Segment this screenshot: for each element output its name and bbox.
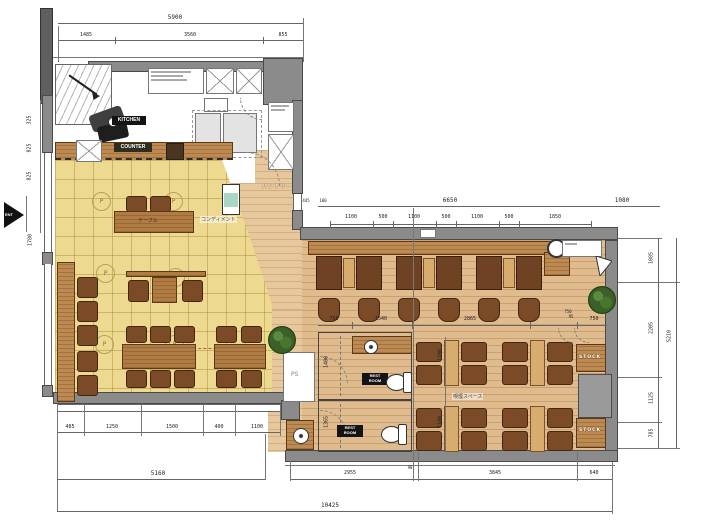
dim-label: 500 [441,215,450,220]
dining-table [343,258,355,288]
dim-value: 90 [408,465,413,470]
dim-value: 2865 [464,316,476,322]
dim-value: 500 [378,214,387,220]
smoking-space-label: 喫煙スペース [452,393,483,400]
dim-label: 1100 [251,425,263,430]
wall-fixture [420,229,436,238]
equipment-note [271,109,285,111]
chair [174,326,195,343]
dim-value: 3560 [184,32,196,38]
dimension-line [57,511,612,512]
equipment-note [271,105,289,107]
condiment-label: コンディメント [200,216,237,223]
display-alcove [562,240,602,257]
dim-label: 785 [650,428,655,437]
dim-label: 1250 [106,425,118,430]
dim-value: 5210 [667,330,673,342]
dim-value: 1100 [251,424,263,430]
dimension-line [58,40,303,41]
ps-shaft [283,352,315,402]
dim-label: 640 [589,471,598,476]
chair [416,431,442,451]
dimension-line [445,337,446,452]
dim-label: 1100 [345,215,357,220]
dim-tick [115,37,116,44]
bottom-left-window [57,404,286,412]
dining-table [122,344,196,369]
dim-value: 1500 [166,424,178,430]
chair [547,365,573,385]
extension-line [418,452,419,481]
extension-line [303,18,304,62]
chair [150,370,171,388]
dim-label: 1540 [375,317,387,322]
dimension-line [591,206,660,207]
dim-tick [436,221,437,228]
corner-mirror [594,256,612,276]
chair [77,301,98,322]
extension-line [577,452,578,481]
extension-line [235,404,236,436]
ps-label-text: PS [291,371,298,378]
dim-value: 5160 [151,470,165,477]
dim-tick [591,221,592,228]
wall-bench [57,262,75,402]
dim-tick [373,221,374,228]
chair [461,431,487,451]
dim-value: 825 [27,143,33,152]
dim-label: 2865 [464,317,476,322]
banquette-bench [308,241,564,255]
dim-tick [263,37,264,44]
dimension-line [676,238,677,448]
chair [150,326,171,343]
chair [174,370,195,388]
dim-value: 750 [329,316,338,322]
dim-label: 1085 [650,252,655,264]
left-window [44,153,52,253]
dim-label: 6650 [443,198,457,204]
left-wall-stub [42,385,53,397]
dim-value: 485 [65,424,74,430]
restroom-label-text: REST ROOM [369,374,381,383]
dim-label: 500 [378,215,387,220]
dining-table [214,344,266,369]
dining-table [152,277,177,303]
stock-label-text: STOCK [579,355,601,360]
chair [77,375,98,396]
pendant-light: P [96,264,115,283]
dining-table [356,256,382,290]
dim-value: 2205 [649,322,655,334]
ps-wall-stub [281,400,300,420]
pendant-label: P [103,341,107,348]
dim-value: 10425 [321,502,339,509]
dim-value: 1850 [549,214,561,220]
restroom-label: REST ROOM [337,425,363,437]
dining-table [396,256,422,290]
dim-label: 1125 [650,392,655,404]
chair [216,370,237,388]
dim-tick [499,221,500,228]
dim-value: 1400 [324,356,330,368]
pendant-label: P [100,198,104,205]
equipment-note [151,75,183,77]
kitchen-equipment [148,68,204,94]
chair [478,298,500,322]
dim-label: 2955 [344,471,356,476]
chair [502,431,528,451]
chair [150,196,171,212]
dim-label: 855 [278,33,287,38]
counter-label-text: COUNTER [121,145,146,151]
dim-label: 325 [28,115,33,124]
chair [216,326,237,343]
chair [241,326,262,343]
sink [364,340,378,354]
condiment-station-shelf [224,193,238,207]
chair [547,408,573,428]
kitchen-label: KITCHEN [112,116,146,125]
extension-line [280,404,281,436]
dim-value: 2955 [344,470,356,476]
stock-label: STOCK [579,355,601,360]
dim-label: 1100 [439,416,444,428]
dim-label: 825 [28,171,33,180]
dim-value: 400 [214,424,223,430]
chair [182,280,203,302]
equipment-note [151,79,187,81]
dim-value: 1080 [615,197,629,204]
counter-label: COUNTER [114,143,152,152]
dim-value: 855 [278,32,287,38]
table-label-text: テーブル [138,218,158,224]
chair [126,196,147,212]
dim-value: 1085 [649,252,655,264]
dimension-line [318,325,607,326]
table-label: テーブル [138,217,158,224]
booth-table [530,406,545,452]
pantry-window [293,194,302,210]
dim-label: 95 [569,315,574,319]
dim-label: 5900 [168,15,182,21]
dimension-line [330,224,591,225]
extension-line [84,404,85,436]
chair [241,370,262,388]
kitchen-equipment [236,68,262,94]
dim-label: 750 [329,317,338,322]
pantry-label: パントリー [262,183,292,190]
dim-label: 100 [319,199,326,203]
dim-value: 1485 [80,32,92,38]
restroom-label: REST ROOM [362,373,388,385]
floor-plan-canvas: P P P P P P KITCHEN [0,0,703,529]
dim-label: 1100 [471,215,483,220]
toilet-tank [398,424,407,445]
dim-label: 825 [28,143,33,152]
pendant-light: P [92,192,111,211]
dimension-line [318,206,591,207]
ps-label: PS [291,371,298,378]
extension-line [413,452,414,481]
dim-label: 750 [589,317,598,322]
dim-label: 10425 [321,503,339,509]
kitchen-label-text: KITCHEN [118,118,140,124]
chair [461,365,487,385]
extension-line [265,434,266,480]
dining-table [423,258,435,288]
refrigerator-note [268,102,294,132]
chair [416,365,442,385]
entrance-label-text: ENT [5,212,13,217]
plant [588,286,616,314]
dimension-line [290,479,612,480]
extension-line [618,282,680,283]
dim-label: 1850 [549,215,561,220]
dim-label: 5210 [668,330,673,342]
dim-value: 825 [27,171,33,180]
chair [518,298,540,322]
dimension-line [57,479,265,480]
exterior-wall [40,8,53,104]
dim-value: 1540 [375,316,387,322]
hall-top-wall [300,227,618,240]
dining-table [316,256,342,290]
bottom-sill-line [285,465,615,466]
chair [461,408,487,428]
dimension-line [57,432,280,433]
entrance-label: ENT [5,212,13,217]
chair [128,280,149,302]
dim-value: 1100 [471,214,483,220]
dim-value: 3845 [489,470,501,476]
dim-label: 500 [504,215,513,220]
dim-value: 6650 [443,197,457,204]
dimension-line [58,23,303,24]
dim-value: 95 [569,314,574,319]
booth-table [444,406,459,452]
extension-line [618,448,680,449]
stock-shelf [576,418,606,448]
dim-label: 3845 [489,471,501,476]
dim-label: 1500 [166,425,178,430]
dim-tick [530,322,531,329]
extension-line [290,460,291,481]
stock-label: STOCK [579,428,601,433]
smoking-space-label-text: 喫煙スペース [453,394,482,400]
dim-label: 1080 [615,198,629,204]
dim-label: 400 [214,425,223,430]
extension-line [57,404,58,512]
dim-value: 1100 [345,214,357,220]
kitchen-equipment [206,68,234,94]
dining-table [503,258,515,288]
toilet-tank [403,372,412,393]
dim-label: 1400 [325,356,330,368]
dim-tick [393,221,394,228]
chair [502,342,528,362]
vanity-counter [352,336,412,354]
dining-table [436,256,462,290]
dim-tick [519,221,520,228]
chair [547,431,573,451]
dimension-line [658,238,659,448]
dim-value: 500 [441,214,450,220]
dim-label: 2205 [650,322,655,334]
sink [293,428,309,444]
dining-table [476,256,502,290]
dim-tick [577,322,578,329]
dim-label: 485 [65,425,74,430]
pendant-label: P [104,270,108,277]
pantry-label-text: パントリー [262,184,292,190]
dining-table [516,256,542,290]
dim-label: 1365 [325,416,330,428]
dim-label: 5160 [151,471,165,477]
dimension-line [26,196,27,232]
dim-value: 1250 [106,424,118,430]
beer-tap [166,143,184,160]
dim-value: 100 [319,198,326,203]
dim-label: 1780 [29,234,34,246]
dim-value: 325 [27,115,33,124]
corner-wall [263,58,303,105]
counter-equipment [76,140,102,162]
dim-value: 1100 [438,416,444,428]
dim-tick [456,221,457,228]
extension-line [203,404,204,436]
chair [126,370,147,388]
condiment-label-text: コンディメント [201,217,236,223]
dim-value: 5900 [168,14,182,21]
chair [398,298,420,322]
chair [77,351,98,372]
dim-value: 500 [504,214,513,220]
dim-label: 90 [408,466,413,470]
dim-label: 3560 [184,33,196,38]
chair [438,298,460,322]
pendant-label: P [172,198,176,205]
dim-label: 1100 [408,215,420,220]
dim-value: 1365 [324,416,330,428]
extension-line [618,422,662,423]
dim-tick [352,322,353,329]
extension-line [618,377,662,378]
dim-value: 1125 [649,392,655,404]
dim-value: 1100 [438,349,444,361]
extension-line [618,238,662,239]
chair [502,365,528,385]
extension-line [141,404,142,436]
dimension-line [40,100,41,233]
shaft-wall [578,374,612,418]
dim-label: 445 [302,199,309,203]
booth-table [530,340,545,386]
chair [77,325,98,346]
left-window [44,264,52,386]
chair [461,342,487,362]
left-wall [42,95,53,153]
chair [502,408,528,428]
alcove-note [565,243,577,245]
plant [268,326,296,354]
extension-line [612,462,613,514]
dim-value: 640 [589,470,598,476]
dim-tick [330,221,331,228]
restroom-label-text: REST ROOM [344,426,356,435]
booth-table [444,340,459,386]
chair [126,326,147,343]
reference-line [413,208,414,480]
condiment-station [222,184,240,215]
equipment-note [151,71,191,73]
chair [547,342,573,362]
dim-value: 445 [302,198,309,203]
dim-label: 1485 [80,33,92,38]
stock-label-text: STOCK [579,428,601,433]
chair [77,277,98,298]
dim-value: 785 [649,428,655,437]
extension-line [58,26,59,62]
dim-value: 1100 [408,214,420,220]
dim-value: 1780 [28,234,34,246]
dim-value: 750 [589,316,598,322]
dim-label: 1100 [439,349,444,361]
